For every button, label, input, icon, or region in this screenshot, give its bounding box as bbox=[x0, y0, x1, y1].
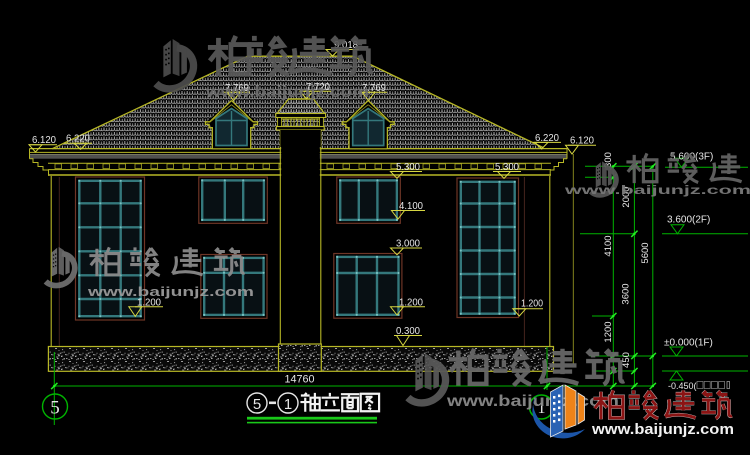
svg-text:www.baijunjz.com: www.baijunjz.com bbox=[563, 183, 750, 197]
svg-text:14760: 14760 bbox=[285, 374, 315, 386]
svg-text:1200: 1200 bbox=[603, 321, 614, 342]
svg-text:-0.450(: -0.450( bbox=[668, 381, 697, 391]
svg-text:5: 5 bbox=[253, 396, 261, 413]
svg-text:5600: 5600 bbox=[640, 242, 651, 263]
svg-text:450: 450 bbox=[621, 352, 632, 368]
svg-text:1: 1 bbox=[284, 396, 292, 413]
svg-text:www.baijunjz.com: www.baijunjz.com bbox=[87, 284, 254, 299]
svg-text:5: 5 bbox=[50, 398, 60, 419]
svg-text:4100: 4100 bbox=[603, 235, 614, 256]
svg-text:3600: 3600 bbox=[621, 283, 632, 304]
svg-text:www.baijunjz.com: www.baijunjz.com bbox=[446, 393, 619, 410]
svg-text:www.baijunjz.com: www.baijunjz.com bbox=[205, 84, 369, 101]
svg-text:www.baijunjz.com: www.baijunjz.com bbox=[591, 421, 734, 438]
svg-text:1.200: 1.200 bbox=[521, 299, 543, 310]
svg-text:±0.000(1F): ±0.000(1F) bbox=[664, 338, 713, 349]
svg-text:3.600(2F): 3.600(2F) bbox=[667, 215, 710, 226]
